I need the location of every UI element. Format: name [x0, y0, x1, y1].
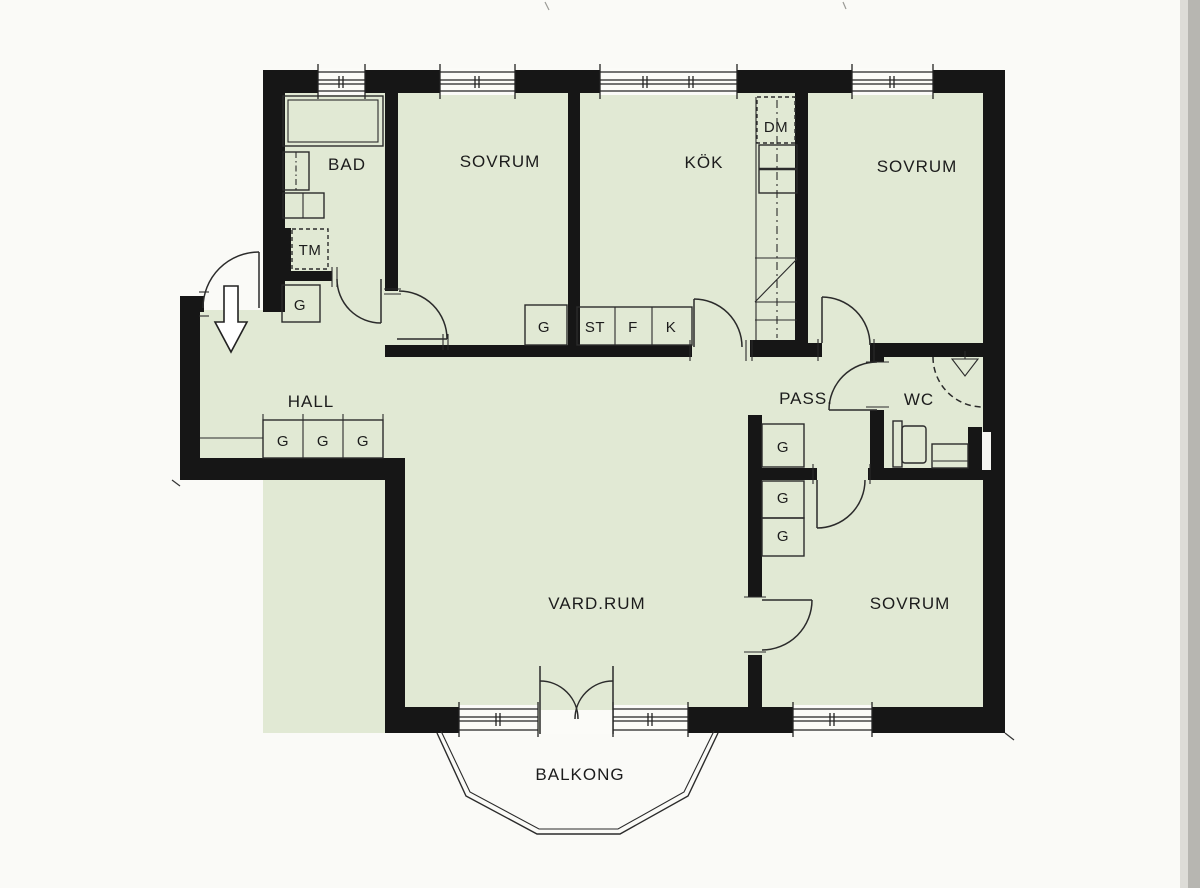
- label-st-cabinet: ST: [585, 319, 605, 336]
- label-room-balkong: BALKONG: [535, 765, 624, 784]
- label-room-kok: KÖK: [685, 153, 724, 172]
- window-balcony-right: [613, 702, 688, 737]
- window-sovrum-top-left: [440, 64, 515, 99]
- label-fridge: F: [628, 319, 638, 336]
- label-closet-hall-3: G: [357, 433, 369, 450]
- label-k-cabinet: K: [666, 319, 677, 336]
- label-room-sovrum-bottom: SOVRUM: [870, 594, 951, 613]
- label-closet-hall-1: G: [277, 433, 289, 450]
- label-closet-pass-1: G: [777, 439, 789, 456]
- scan-edge-light: [1180, 0, 1188, 888]
- floor-plan-page: BAD SOVRUM KÖK SOVRUM HALL PASS. WC VARD…: [0, 0, 1200, 888]
- floor-plan-drawing: BAD SOVRUM KÖK SOVRUM HALL PASS. WC VARD…: [0, 0, 1200, 888]
- label-washing-machine: TM: [299, 242, 322, 259]
- fold-marks: [545, 2, 846, 10]
- label-room-pass: PASS.: [779, 389, 833, 408]
- window-balcony-left: [459, 702, 538, 737]
- label-closet-bad: G: [294, 297, 306, 314]
- label-room-sovrum-top-right: SOVRUM: [877, 157, 958, 176]
- label-room-bad: BAD: [328, 155, 366, 174]
- window-bad: [318, 64, 365, 99]
- label-dishwasher: DM: [764, 119, 788, 136]
- scan-edge-dark: [1188, 0, 1200, 888]
- label-closet-sovrum-top-left: G: [538, 319, 550, 336]
- label-closet-pass-2: G: [777, 490, 789, 507]
- window-kok: [600, 64, 737, 99]
- window-sovrum-top-right: [852, 64, 933, 99]
- label-room-sovrum-top-left: SOVRUM: [460, 152, 541, 171]
- label-closet-pass-3: G: [777, 528, 789, 545]
- label-closet-hall-2: G: [317, 433, 329, 450]
- window-sovrum-bottom: [793, 702, 872, 737]
- label-room-hall: HALL: [288, 392, 335, 411]
- wc-niche: [982, 432, 991, 470]
- label-room-vardagsrum: VARD.RUM: [548, 594, 645, 613]
- label-room-wc: WC: [904, 390, 934, 409]
- balcony-door-threshold: [540, 710, 613, 734]
